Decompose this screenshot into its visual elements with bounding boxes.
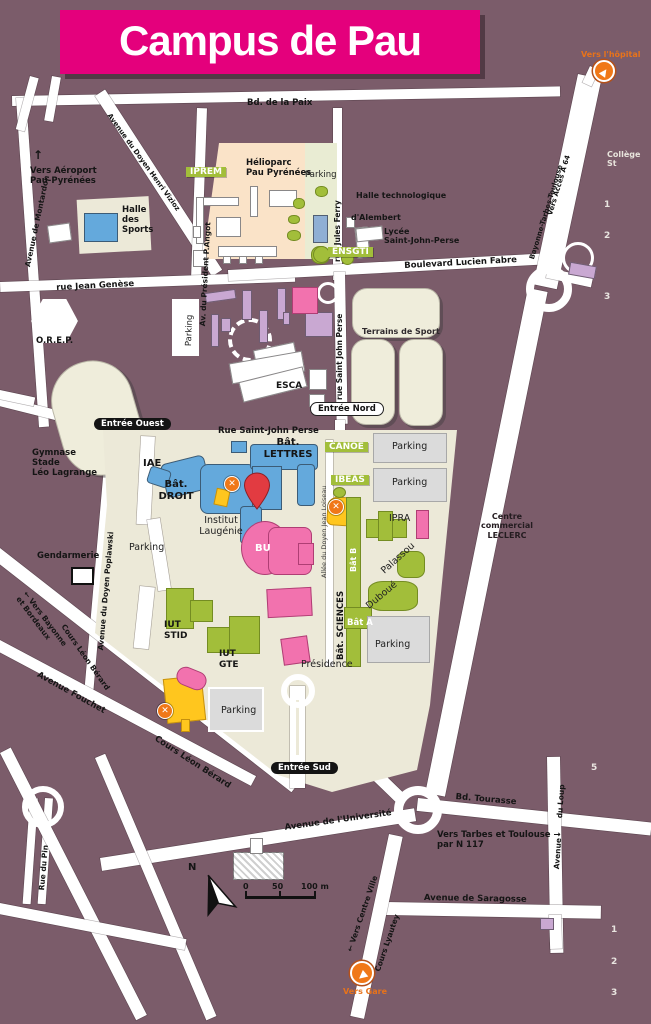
street-label-st-john-perse-vertical: rue Saint John Perse (336, 314, 345, 400)
gare-direction-icon: ▲ (350, 961, 374, 985)
parking-label-heliopark: Parking (305, 170, 337, 180)
direction-label-hopital: Vers l'hôpital (581, 50, 641, 59)
restaurant-icon-east: ✕ (328, 499, 344, 515)
map-number-right-3: 3 (604, 292, 610, 302)
building-near-esca-1 (309, 369, 327, 390)
place-badge-iprem: IPREM (186, 167, 226, 177)
tree-ibeas (333, 487, 346, 498)
place-label-institut-laugenie: Institut Laugénie (196, 515, 246, 537)
parking-label-midband: Parking (184, 315, 195, 347)
roundabout-lucien-fabre (526, 266, 572, 312)
building-lilac-8 (305, 312, 333, 337)
building-lilac-3 (221, 318, 231, 332)
place-label-bat-b: Bât B (349, 548, 358, 572)
place-badge-ibeas: IBEAS (331, 475, 369, 485)
place-badge-ensgti: ENSGTI (328, 247, 373, 257)
place-label-leclerc: Centre commercial LECLERC (472, 512, 542, 540)
building-lilac-7 (283, 312, 290, 325)
building-pink-midband (292, 287, 318, 314)
street-label-bd-de-la-paix: Bd. de la Paix (247, 98, 312, 108)
building-lilac-4 (242, 290, 252, 320)
scale-bar-tick-right (314, 891, 316, 899)
street-label-st-john-perse-horizontal: Rue Saint-John Perse (218, 426, 319, 436)
building-gendarmerie (71, 567, 94, 585)
map-number-bottom-1: 1 (611, 925, 617, 935)
building-lycee-wing-2 (355, 226, 383, 243)
map-number-bottom-2: 2 (611, 957, 617, 967)
page-title: Campus de Pau (60, 10, 480, 74)
place-label-helioparc: Hélioparc Pau Pyrénées (246, 158, 311, 178)
roundabout-tourasse (394, 786, 442, 834)
building-heliopark-tooth-2 (239, 256, 247, 264)
place-label-esca: ESCA (276, 381, 302, 392)
arrow-up-right-icon: ▲ (596, 63, 613, 82)
building-heliopark-7 (193, 226, 201, 238)
building-hatched-south (233, 852, 284, 880)
roundabout-presidence (281, 674, 315, 708)
building-lilac-2 (211, 314, 219, 347)
tree-heliopark-2 (288, 215, 300, 224)
place-label-bat-sciences: Bât. SCIENCES (336, 591, 346, 660)
building-heliopark-4 (250, 186, 258, 217)
sports-field-southeast (399, 339, 443, 426)
campus-map: ✕ ✕ ✕ ▲ ▲ Entrée Ouest Entrée Nord Entré… (0, 0, 651, 1024)
parking-label-campus-west: Parking (129, 542, 164, 553)
tree-parking-strip-north (315, 186, 328, 197)
building-lilac-saragosse (540, 918, 554, 930)
roundabout-southwest (22, 786, 64, 828)
place-label-presidence: Présidence (301, 659, 353, 670)
place-badge-canoe: CANOE (325, 442, 368, 452)
tree-heliopark-3 (287, 230, 301, 241)
scale-bar-tick-mid (279, 891, 281, 899)
map-number-right-1: 1 (604, 200, 610, 210)
entrance-badge-nord: Entrée Nord (310, 402, 384, 416)
building-iut-stid-2 (190, 600, 213, 622)
building-lettres-east (297, 464, 315, 506)
building-lilac-5 (259, 310, 268, 343)
map-number-mid-5: 5 (591, 763, 597, 773)
map-number-right-2: 2 (604, 231, 610, 241)
street-label-saragosse: Avenue de Saragosse (424, 893, 527, 905)
place-label-lycee: Lycée Saint-John-Perse (384, 227, 459, 246)
roundabout-small-midband (317, 282, 339, 304)
map-pin-icon (243, 472, 271, 510)
building-halle-des-sports (84, 213, 118, 242)
parking-label-northeast-2: Parking (392, 477, 427, 488)
hospital-direction-icon: ▲ (593, 60, 615, 82)
place-label-iae: IAE (143, 458, 161, 470)
compass-north-label: N (188, 862, 196, 874)
parking-label-south: Parking (221, 705, 256, 716)
building-heliopark-3 (216, 217, 241, 237)
place-label-dalembert: d'Alembert (351, 213, 401, 222)
building-pink-south-1 (266, 587, 312, 618)
scale-bar-tick-left (245, 891, 247, 899)
place-label-bat-lettres: Bât. LETTRES (258, 437, 318, 461)
building-cafeteria-south-nub (181, 719, 190, 732)
map-number-bottom-3: 3 (611, 988, 617, 998)
place-label-iut-stid: IUT STID (164, 620, 187, 641)
place-label-orep: O.R.E.P. (36, 336, 73, 346)
arrow-up-icon: ↑ (33, 148, 43, 162)
building-west-of-halle (47, 222, 72, 243)
place-label-halle-technologique: Halle technologique (356, 191, 446, 200)
place-label-college: Collège St (607, 150, 651, 169)
scale-bar (246, 896, 316, 899)
building-lettres-nub (231, 441, 247, 453)
building-heliopark-tooth-3 (255, 256, 263, 264)
direction-label-aeroport: Vers Aéroport Pau-Pyrénées (30, 166, 97, 186)
scale-label-fifty: 50 (272, 882, 283, 891)
direction-label-tarbes: Vers Tarbes et Toulouse → par N 117 (437, 830, 561, 850)
building-bat-b-bar (346, 497, 361, 667)
place-label-iut-gte: IUT GTE (219, 649, 239, 670)
building-bu-nub (298, 543, 314, 565)
road-avenue-saragosse (386, 902, 601, 919)
entrance-badge-ouest: Entrée Ouest (94, 418, 171, 430)
place-label-bu: BU (255, 543, 271, 555)
entrance-badge-sud: Entrée Sud (271, 762, 338, 774)
road-southwest-diagonal-1 (0, 748, 147, 1021)
direction-label-gare: Vers Gare (343, 987, 387, 996)
building-parking-strip-blue (313, 215, 328, 243)
building-heliopark-tooth-1 (223, 256, 231, 264)
building-hatched-stem (250, 838, 263, 854)
restaurant-icon-center: ✕ (224, 476, 240, 492)
parking-label-southeast: Parking (375, 639, 410, 650)
place-label-bat-a: Bât A (347, 618, 373, 628)
place-label-bat-droit: Bât. DROIT (153, 479, 199, 503)
building-pink-ipra (416, 510, 429, 539)
place-label-ipra: IPRA (389, 513, 410, 524)
place-label-terrains-de-sport: Terrains de Sport (362, 327, 440, 336)
place-label-gendarmerie: Gendarmerie (37, 551, 99, 561)
place-label-halle-des-sports: Halle des Sports (122, 205, 153, 235)
road-entree-sud-median (296, 700, 299, 755)
street-label-rue-du-pin: Rue du Pin (38, 845, 51, 891)
place-label-gymnase: Gymnase Stade Léo Lagrange (32, 448, 97, 478)
street-label-loiseau: Allée du Doyen Jean Loiseau (321, 486, 329, 578)
parking-label-northeast-1: Parking (392, 441, 427, 452)
restaurant-icon-south: ✕ (157, 703, 173, 719)
tree-heliopark-1 (293, 198, 305, 209)
